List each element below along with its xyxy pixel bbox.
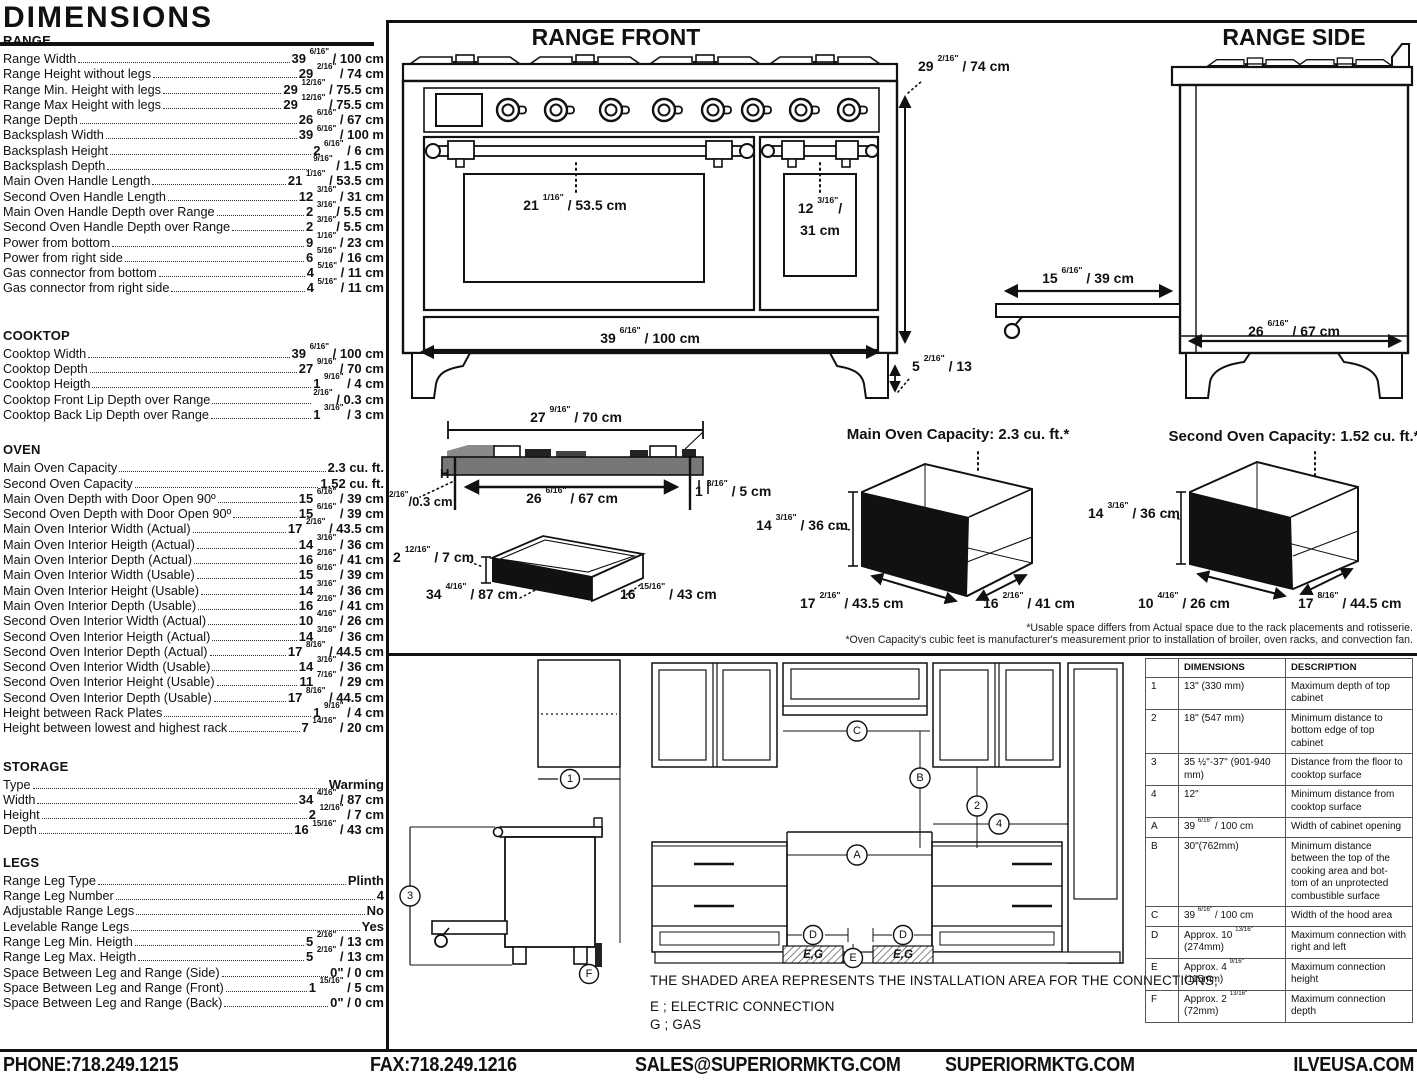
- footer-phone: PHONE:718.249.1215: [3, 1054, 178, 1077]
- spec-label: Second Oven Interior Depth (Actual): [3, 645, 208, 659]
- callout-4: 4: [933, 814, 1068, 834]
- dotted-leader: [164, 716, 311, 717]
- table-dims-cell: 39 6/16" / 100 cm: [1179, 818, 1286, 838]
- spec-label: Range Width: [3, 52, 76, 66]
- table-dims-cell: Approx. 10 13/16" (274mm): [1179, 926, 1286, 958]
- footer-fax: FAX:718.249.1216: [370, 1054, 517, 1077]
- dotted-leader: [163, 108, 281, 109]
- footnote-line: *Oven Capacity's cubic feet is manufactu…: [845, 635, 1413, 647]
- second-oven-depth-dim: 17 8/16" / 44.5 cm: [1298, 595, 1402, 611]
- table-desc-cell: Width of the hood area: [1286, 907, 1413, 927]
- page-title: DIMENSIONS: [3, 1, 213, 35]
- table-header-row: DIMENSIONSDESCRIPTION: [1146, 659, 1413, 678]
- main-oven-depth-dim: 16 2/16" / 41 cm: [983, 595, 1075, 611]
- dotted-leader: [135, 945, 304, 946]
- spec-row: Main Oven Capacity2.3 cu. ft.: [3, 460, 384, 475]
- second-oven-width-dim: 10 4/16" / 26 cm: [1138, 595, 1230, 611]
- spec-label: Second Oven Depth with Door Open 90º: [3, 507, 231, 521]
- spec-label: Width: [3, 793, 35, 807]
- spec-value: 39 6/16" / 100 cm: [292, 346, 385, 361]
- table-desc-cell: Maximum connection depth: [1286, 990, 1413, 1022]
- dotted-leader: [135, 487, 319, 488]
- install-table: DIMENSIONSDESCRIPTION113" (330 mm)Maximu…: [1145, 658, 1413, 1023]
- dotted-leader: [98, 884, 346, 885]
- spec-row: Second Oven Depth with Door Open 90º15 6…: [3, 506, 384, 521]
- table-row: 412"Minimum distance from cooktop surfac…: [1146, 786, 1413, 818]
- table-row: EApprox. 4 9/16" (115mm)Maximum connecti…: [1146, 958, 1413, 990]
- dotted-leader: [37, 803, 296, 804]
- spec-value: 4 5/16" / 11 cm: [307, 280, 384, 295]
- table-desc-cell: Maximum depth of top cabinet: [1286, 677, 1413, 709]
- spec-label: Second Oven Interior Width (Actual): [3, 614, 206, 628]
- dotted-leader: [152, 184, 285, 185]
- footer-site2: ILVEUSA.COM: [1293, 1054, 1414, 1077]
- dotted-leader: [201, 594, 297, 595]
- table-id-cell: B: [1146, 837, 1179, 907]
- spec-label: Backsplash Width: [3, 128, 104, 142]
- spec-row: Cooktop Back Lip Depth over Range1 3/16"…: [3, 407, 384, 422]
- dotted-leader: [229, 731, 299, 732]
- side-depth-dim: 26 6/16" / 67 cm: [1248, 323, 1340, 339]
- dotted-leader: [210, 655, 286, 656]
- spec-value: 15 6/16" / 39 cm: [299, 567, 384, 582]
- svg-text:E: E: [849, 952, 856, 964]
- spec-value: 39 6/16" / 100 cm: [292, 51, 385, 66]
- spec-label: Main Oven Interior Depth (Usable): [3, 599, 196, 613]
- spec-value: 16 15/16" / 43 cm: [294, 822, 384, 837]
- range-front-title: RANGE FRONT: [532, 24, 701, 51]
- side-grates: [1208, 58, 1392, 66]
- spec-section-heading: STORAGE: [3, 759, 384, 774]
- callout-1: 1: [561, 770, 580, 789]
- table-id-cell: F: [1146, 990, 1179, 1022]
- spec-label: Range Min. Height with legs: [3, 83, 161, 97]
- svg-text:E,G: E,G: [803, 949, 823, 961]
- spec-label: Height between lowest and highest rack: [3, 721, 227, 735]
- spec-label: Main Oven Handle Length: [3, 174, 150, 188]
- spec-label: Power from bottom: [3, 236, 110, 250]
- svg-text:E,G: E,G: [893, 949, 913, 961]
- dotted-leader: [80, 123, 297, 124]
- spec-label: Cooktop Depth: [3, 362, 88, 376]
- spec-label: Second Oven Interior Width (Usable): [3, 660, 210, 674]
- table-desc-cell: Minimum distance between the top of the …: [1286, 837, 1413, 907]
- legend-gas: G ; GAS: [650, 1017, 701, 1032]
- spec-row: Space Between Leg and Range (Back)0" / 0…: [3, 995, 384, 1010]
- dotted-leader: [214, 701, 286, 702]
- spec-label: Gas connector from bottom: [3, 266, 157, 280]
- spec-label: Height between Rack Plates: [3, 706, 162, 720]
- main-oven-door: [424, 137, 754, 310]
- table-id-cell: 4: [1146, 786, 1179, 818]
- spec-label: Space Between Leg and Range (Front): [3, 981, 224, 995]
- table-row: B30"(762mm)Minimum distance between the …: [1146, 837, 1413, 907]
- dotted-leader: [197, 578, 297, 579]
- table-header-cell: [1146, 659, 1179, 678]
- spec-value: 26 6/16" / 67 cm: [299, 112, 384, 127]
- base-cabinets: [652, 842, 1120, 963]
- spec-label: Main Oven Interior Width (Actual): [3, 522, 191, 536]
- dimension-3-line: 3: [400, 827, 512, 965]
- spec-list: RANGERange Width39 6/16" / 100 cmRange H…: [3, 33, 384, 1010]
- spec-row: Height between lowest and highest rack7 …: [3, 720, 384, 735]
- spec-section-oven: OVENMain Oven Capacity2.3 cu. ft.Second …: [3, 442, 384, 735]
- dotted-leader: [136, 914, 364, 915]
- backsplash-fin: [1392, 44, 1409, 67]
- footnotes: *Usable space differs from Actual space …: [845, 623, 1413, 646]
- spec-value: 7 14/16" / 20 cm: [302, 720, 385, 735]
- table-desc-cell: Distance from the floor to cooktop surfa…: [1286, 754, 1413, 786]
- spec-row: Range Min. Height with legs29 12/16" / 7…: [3, 82, 384, 97]
- spec-label: Cooktop Width: [3, 347, 86, 361]
- dotted-leader: [119, 471, 325, 472]
- svg-text:D: D: [809, 929, 817, 941]
- range-height-dim: 29 2/16" / 74 cm: [918, 58, 1010, 74]
- footer-email: SALES@SUPERIORMKTG.COM: [635, 1054, 901, 1077]
- spec-value: 14 3/16" / 36 cm: [299, 583, 384, 598]
- table-dims-cell: 30"(762mm): [1179, 837, 1286, 907]
- footer-site: SUPERIORMKTG.COM: [945, 1054, 1135, 1077]
- spec-value: Yes: [362, 919, 384, 934]
- cooktop-h-label: H: [440, 466, 449, 481]
- spec-label: Main Oven Depth with Door Open 90º: [3, 492, 216, 506]
- spec-label: Main Oven Handle Depth over Range: [3, 205, 215, 219]
- spec-value: 16 2/16" / 41 cm: [299, 598, 384, 613]
- dotted-leader: [224, 1006, 328, 1007]
- cooktop-front-lip-dim: 2/16"/0.3 cm: [389, 494, 453, 509]
- table-desc-cell: Maximum connection height: [1286, 958, 1413, 990]
- svg-text:A: A: [853, 849, 861, 861]
- spec-value: 14 3/16" / 36 cm: [299, 537, 384, 552]
- dotted-leader: [116, 899, 375, 900]
- front-second-handle-dim: 12 3/16"/ 31 cm: [798, 197, 842, 241]
- table-row: DApprox. 10 13/16" (274mm)Maximum connec…: [1146, 926, 1413, 958]
- front-legs: [412, 353, 888, 398]
- dotted-leader: [88, 357, 289, 358]
- spec-section-heading: LEGS: [3, 855, 384, 870]
- spec-value: 16 2/16" / 41 cm: [299, 552, 384, 567]
- table-header-cell: DIMENSIONS: [1179, 659, 1286, 678]
- spec-value: No: [367, 903, 384, 918]
- table-dims-cell: 12": [1179, 786, 1286, 818]
- table-row: 218" (547 mm)Minimum distance to bottom …: [1146, 709, 1413, 754]
- table-id-cell: E: [1146, 958, 1179, 990]
- svg-text:F: F: [586, 968, 593, 980]
- callout-2: 2: [967, 767, 987, 848]
- spec-label: Range Leg Min. Heigth: [3, 935, 133, 949]
- spec-value: 10 4/16" / 26 cm: [299, 613, 384, 628]
- svg-text:2: 2: [974, 800, 980, 812]
- table-id-cell: 2: [1146, 709, 1179, 754]
- spec-row: Adjustable Range LegsNo: [3, 903, 384, 918]
- spec-row: Gas connector from right side4 5/16" / 1…: [3, 280, 384, 295]
- callout-A: A: [787, 845, 932, 865]
- table-id-cell: 1: [1146, 677, 1179, 709]
- spec-row: Range Height without legs29 2/16" / 74 c…: [3, 66, 384, 81]
- spec-label: Levelable Range Legs: [3, 920, 129, 934]
- spec-label: Second Oven Handle Length: [3, 190, 166, 204]
- table-dims-cell: 39 6/16" / 100 cm: [1179, 907, 1286, 927]
- dimensions-sheet: DIMENSIONS RANGERange Width39 6/16" / 10…: [0, 0, 1417, 1080]
- dotted-leader: [153, 77, 297, 78]
- spec-value: 1 15/16" / 5 cm: [309, 980, 384, 995]
- dotted-leader: [125, 261, 304, 262]
- spec-row: Depth16 15/16" / 43 cm: [3, 822, 384, 837]
- side-cooktop-slab: [1172, 67, 1412, 85]
- dotted-leader: [92, 387, 311, 388]
- front-width-dim: 39 6/16" / 100 cm: [600, 330, 700, 346]
- spec-label: Space Between Leg and Range (Side): [3, 966, 220, 980]
- leg-height-dim: 5 2/16" / 13: [912, 358, 972, 374]
- svg-text:4: 4: [996, 818, 1002, 830]
- spec-label: Range Max Height with legs: [3, 98, 161, 112]
- table-row: 335 ½"-37" (901-940 mm)Distance from the…: [1146, 754, 1413, 786]
- spec-label: Backsplash Depth: [3, 159, 105, 173]
- cooktop-slab: [442, 445, 703, 475]
- callout-C: C: [783, 721, 930, 741]
- dotted-leader: [33, 788, 327, 789]
- top-rule: [386, 20, 1417, 23]
- main-oven-height-dim: 14 3/16" / 36 cm: [740, 517, 848, 533]
- spec-label: Main Oven Capacity: [3, 461, 117, 475]
- dotted-leader: [110, 154, 311, 155]
- callout-F: F: [580, 965, 599, 984]
- table-dims-cell: Approx. 4 9/16" (115mm): [1179, 958, 1286, 990]
- svg-text:1: 1: [567, 773, 573, 785]
- callout-D-right: D: [873, 926, 932, 945]
- cooktop-inner-width-dim: 26 6/16" / 67 cm: [526, 490, 618, 506]
- table-id-cell: 3: [1146, 754, 1179, 786]
- table-dims-cell: 35 ½"-37" (901-940 mm): [1179, 754, 1286, 786]
- spec-label: Main Oven Interior Height (Usable): [3, 584, 199, 598]
- spec-section-heading: RANGE: [3, 33, 384, 48]
- spec-label: Second Oven Interior Depth (Usable): [3, 691, 212, 705]
- spec-label: Second Oven Interior Heigth (Actual): [3, 630, 210, 644]
- spec-label: Main Oven Interior Width (Usable): [3, 568, 195, 582]
- table-dims-cell: Approx. 2 13/16" (72mm): [1179, 990, 1286, 1022]
- dotted-leader: [232, 230, 304, 231]
- spec-section-storage: STORAGETypeWarmingWidth34 4/16" / 87 cmH…: [3, 759, 384, 838]
- dotted-leader: [218, 502, 297, 503]
- range-side-drawing: [980, 40, 1417, 408]
- table-desc-cell: Minimum distance from cooktop surface: [1286, 786, 1413, 818]
- side-handle: [996, 304, 1180, 338]
- spec-label: Range Leg Type: [3, 874, 96, 888]
- dotted-leader: [197, 548, 297, 549]
- spec-label: Main Oven Interior Depth (Actual): [3, 553, 192, 567]
- spec-row: Range Leg TypePlinth: [3, 873, 384, 888]
- dotted-leader: [193, 532, 286, 533]
- dotted-leader: [39, 833, 292, 834]
- spec-value: 14 3/16" / 36 cm: [299, 659, 384, 674]
- second-oven-height-bracket: [1168, 492, 1186, 564]
- table-desc-cell: Width of cabinet opening: [1286, 818, 1413, 838]
- table-desc-cell: Maximum connection with right and left: [1286, 926, 1413, 958]
- svg-text:D: D: [899, 929, 907, 941]
- spec-section-heading: COOKTOP: [3, 328, 384, 343]
- spec-label: Power from right side: [3, 251, 123, 265]
- side-view-range: [432, 818, 602, 967]
- spec-row: Second Oven Interior Height (Usable)11 7…: [3, 674, 384, 689]
- installation-note: THE SHADED AREA REPRESENTS THE INSTALLAT…: [650, 973, 1218, 988]
- spec-value: 0" / 0 cm: [330, 995, 384, 1010]
- spec-label: Second Oven Capacity: [3, 477, 133, 491]
- front-control-panel: [424, 88, 879, 132]
- main-oven-capacity-title: Main Oven Capacity: 2.3 cu. ft.*: [847, 426, 1070, 443]
- spec-section-heading: OVEN: [3, 442, 384, 457]
- spec-section-legs: LEGSRange Leg TypePlinthRange Leg Number…: [3, 855, 384, 1011]
- dotted-leader: [212, 670, 296, 671]
- dotted-leader: [212, 640, 296, 641]
- spec-label: Main Oven Interior Heigth (Actual): [3, 538, 195, 552]
- dotted-leader: [106, 138, 297, 139]
- spec-label: Range Leg Max. Heigth: [3, 950, 136, 964]
- spec-value: Plinth: [348, 873, 384, 888]
- spec-label: Range Height without legs: [3, 67, 151, 81]
- dotted-leader: [212, 403, 311, 404]
- dotted-leader: [208, 624, 297, 625]
- svg-text:B: B: [916, 772, 923, 784]
- dotted-leader: [90, 372, 297, 373]
- table-id-cell: C: [1146, 907, 1179, 927]
- spec-label: Adjustable Range Legs: [3, 904, 134, 918]
- side-handle-depth-dim: 15 6/16" / 39 cm: [1042, 270, 1134, 286]
- spec-value: 4: [377, 888, 384, 903]
- spec-section-cooktop: COOKTOPCooktop Width39 6/16" / 100 cmCoo…: [3, 328, 384, 422]
- table-row: C39 6/16" / 100 cmWidth of the hood area: [1146, 907, 1413, 927]
- spec-row: Second Oven Interior Heigth (Actual)14 3…: [3, 629, 384, 644]
- spec-label: Backsplash Height: [3, 144, 108, 158]
- legend-electric: E ; ELECTRIC CONNECTION: [650, 999, 835, 1014]
- front-main-handle-dim: 21 1/16" / 53.5 cm: [523, 197, 627, 213]
- spec-value: 2.3 cu. ft.: [328, 460, 384, 475]
- storage-height-dim: 2 12/16" / 7 cm: [393, 549, 474, 565]
- dotted-leader: [217, 215, 304, 216]
- main-oven-width-dim: 17 2/16" / 43.5 cm: [800, 595, 904, 611]
- dotted-leader: [159, 276, 305, 277]
- footer-rule: [0, 1049, 1417, 1052]
- spec-section-range: RANGERange Width39 6/16" / 100 cmRange H…: [3, 33, 384, 296]
- dotted-leader: [226, 991, 307, 992]
- dotted-leader: [198, 609, 297, 610]
- dotted-leader: [168, 200, 297, 201]
- svg-text:C: C: [853, 725, 861, 737]
- side-legs: [1186, 353, 1402, 398]
- storage-width-dim: 34 4/16" / 87 cm: [426, 586, 518, 602]
- installation-elevation: C B 2 4 A E,G E,G: [648, 655, 1148, 975]
- spec-value: 12 3/16" / 31 cm: [299, 189, 384, 204]
- dotted-leader: [107, 169, 311, 170]
- storage-depth-dim: 16 15/16" / 43 cm: [620, 586, 717, 602]
- dotted-leader: [163, 93, 281, 94]
- second-oven-height-dim: 14 3/16" / 36 cm: [1088, 505, 1178, 521]
- dotted-leader: [233, 517, 297, 518]
- spec-label: Second Oven Interior Height (Usable): [3, 675, 215, 689]
- spec-label: Cooktop Front Lip Depth over Range: [3, 393, 210, 407]
- table-row: A39 6/16" / 100 cmWidth of cabinet openi…: [1146, 818, 1413, 838]
- spec-label: Range Leg Number: [3, 889, 114, 903]
- storage-drawer-drawing: [388, 528, 733, 616]
- dotted-leader: [42, 818, 307, 819]
- spec-row: Range Leg Max. Heigth5 2/16" / 13 cm: [3, 949, 384, 964]
- dotted-leader: [138, 960, 304, 961]
- dotted-leader: [217, 685, 298, 686]
- spec-label: Range Depth: [3, 113, 78, 127]
- cooktop-back-lip-dim: 1 3/16" / 5 cm: [695, 483, 771, 499]
- spec-label: Cooktop Heigth: [3, 377, 90, 391]
- spec-value: 1 3/16" / 3 cm: [313, 407, 384, 422]
- display: [436, 94, 482, 126]
- cooktop-width-dim: 27 9/16" / 70 cm: [530, 409, 622, 425]
- spec-label: Gas connector from right side: [3, 281, 169, 295]
- side-body: [1180, 85, 1408, 353]
- table-row: FApprox. 2 13/16" (72mm)Maximum connecti…: [1146, 990, 1413, 1022]
- spec-value: 5 2/16" / 13 cm: [306, 949, 384, 964]
- table-dims-cell: 18" (547 mm): [1179, 709, 1286, 754]
- spec-row: Space Between Leg and Range (Front)1 15/…: [3, 980, 384, 995]
- dotted-leader: [78, 62, 289, 63]
- spec-label: Space Between Leg and Range (Back): [3, 996, 222, 1010]
- dotted-leader: [171, 291, 304, 292]
- dotted-leader: [211, 418, 311, 419]
- callout-E: E: [844, 944, 863, 968]
- table-row: 113" (330 mm)Maximum depth of top cabine…: [1146, 677, 1413, 709]
- dotted-leader: [222, 976, 329, 977]
- callout-B: B: [910, 731, 930, 848]
- spec-value: Warming: [329, 777, 384, 792]
- svg-text:3: 3: [407, 890, 413, 902]
- table-id-cell: A: [1146, 818, 1179, 838]
- second-oven-capacity-drawing: [1090, 423, 1417, 623]
- installation-side-view: 1 F 3: [395, 655, 648, 1060]
- spec-value: 15 6/16" / 39 cm: [299, 491, 384, 506]
- spec-label: Second Oven Handle Depth over Range: [3, 220, 230, 234]
- second-oven-capacity-title: Second Oven Capacity: 1.52 cu. ft.*: [1169, 428, 1417, 445]
- table-desc-cell: Minimum distance to bottom edge of top c…: [1286, 709, 1413, 754]
- spec-row: Backsplash Depth9/16" / 1.5 cm: [3, 158, 384, 173]
- table-id-cell: D: [1146, 926, 1179, 958]
- dotted-leader: [194, 563, 297, 564]
- spec-value: 29 12/16" / 75.5 cm: [283, 82, 384, 97]
- spec-label: Cooktop Back Lip Depth over Range: [3, 408, 209, 422]
- table-header-cell: DESCRIPTION: [1286, 659, 1413, 678]
- dotted-leader: [112, 246, 304, 247]
- spec-label: Type: [3, 778, 31, 792]
- table-dims-cell: 13" (330 mm): [1179, 677, 1286, 709]
- spec-row: Range Leg Number4: [3, 888, 384, 903]
- spec-label: Height: [3, 808, 40, 822]
- spec-label: Depth: [3, 823, 37, 837]
- footnote-line: *Usable space differs from Actual space …: [845, 623, 1413, 635]
- callout-D-left: D: [787, 926, 848, 945]
